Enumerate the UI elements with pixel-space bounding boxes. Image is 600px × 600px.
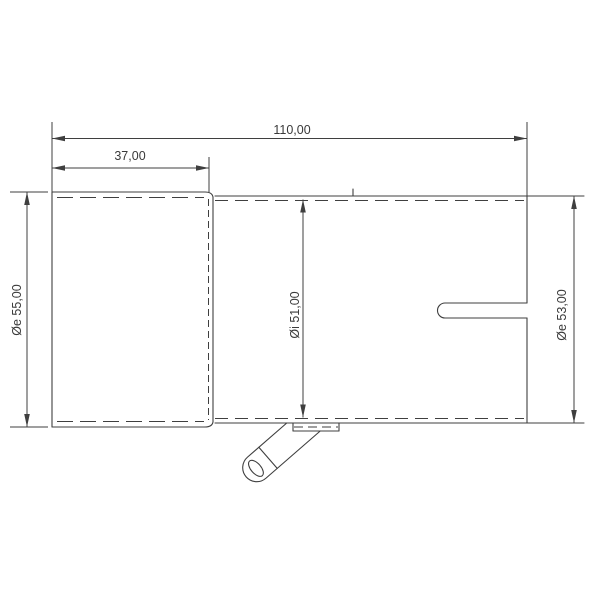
arrowhead-socket-right [196, 165, 209, 171]
step-bottom-curve [205, 422, 213, 427]
dimension-label-socket-length: 37,00 [114, 149, 145, 163]
pipe-adapter-drawing: 110,00 37,00 Øe 55,00 Øi 51,00 Øe 53,00 [0, 0, 600, 600]
arrowhead-inner-dia-top [300, 200, 306, 213]
angled-stub-tube [237, 410, 320, 488]
arrowhead-overall-left [52, 136, 65, 142]
stub-tube-outline [237, 410, 320, 488]
arrowhead-right-dia-top [571, 196, 577, 209]
dimension-labels-group: 110,00 37,00 Øe 55,00 Øi 51,00 Øe 53,00 [10, 123, 569, 341]
arrowhead-socket-left [52, 165, 65, 171]
stub-tube-chamfer-ring [259, 447, 277, 468]
slot-rounded-end [438, 303, 445, 318]
arrowhead-left-dia-bottom [24, 414, 30, 427]
technical-drawing-canvas: 110,00 37,00 Øe 55,00 Øi 51,00 Øe 53,00 [0, 0, 600, 600]
arrowheads-group [24, 136, 577, 427]
dimension-label-overall-length: 110,00 [273, 123, 310, 137]
dimension-label-inner-diameter: Øi 51,00 [288, 291, 302, 338]
arrowhead-left-dia-top [24, 192, 30, 205]
dimension-label-right-outer-diameter: Øe 53,00 [555, 289, 569, 340]
arrowhead-inner-dia-bottom [300, 405, 306, 418]
part-outline-group [52, 189, 584, 487]
arrowhead-overall-right [514, 136, 527, 142]
stub-tube-bore-opening [246, 458, 266, 479]
dimension-lines-group [10, 122, 574, 427]
dimension-label-left-outer-diameter: Øe 55,00 [10, 284, 24, 335]
arrowhead-right-dia-bottom [571, 410, 577, 423]
step-top-curve [205, 192, 213, 197]
